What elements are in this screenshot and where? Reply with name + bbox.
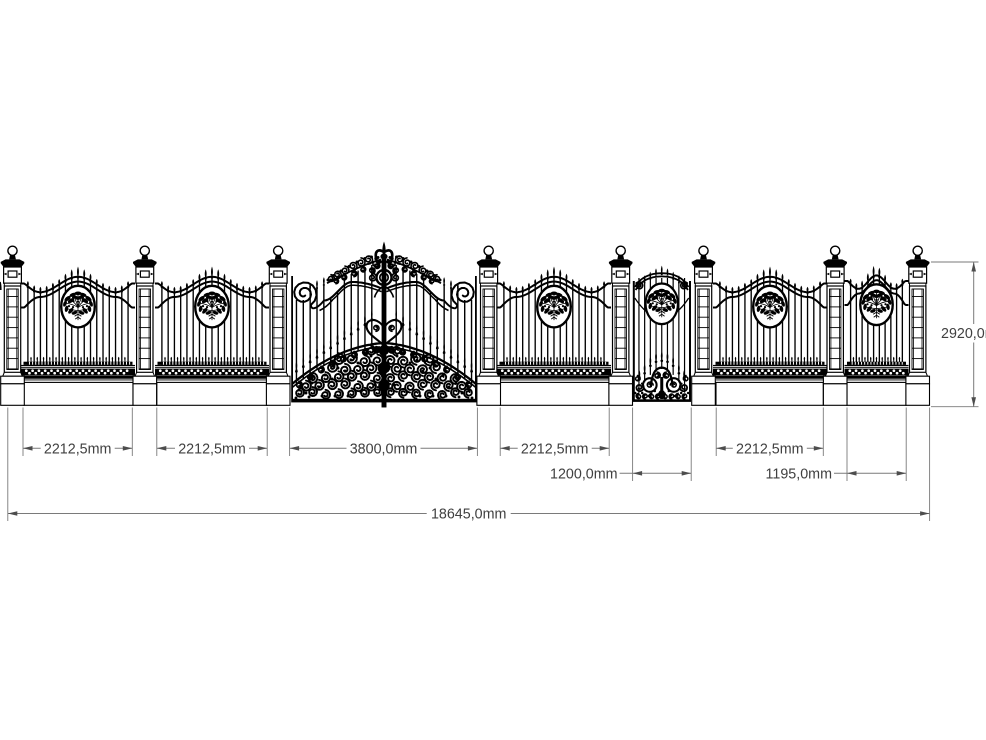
svg-text:3800,0mm: 3800,0mm [350, 442, 418, 458]
svg-text:2212,5mm: 2212,5mm [44, 442, 112, 458]
svg-text:2212,5mm: 2212,5mm [178, 442, 246, 458]
svg-text:2920,0mm: 2920,0mm [941, 326, 986, 342]
svg-text:18645,0mm: 18645,0mm [431, 507, 507, 523]
svg-text:2212,5mm: 2212,5mm [736, 442, 804, 458]
svg-text:2212,5mm: 2212,5mm [521, 442, 589, 458]
svg-text:1195,0mm: 1195,0mm [766, 467, 833, 483]
svg-text:1200,0mm: 1200,0mm [550, 467, 618, 483]
